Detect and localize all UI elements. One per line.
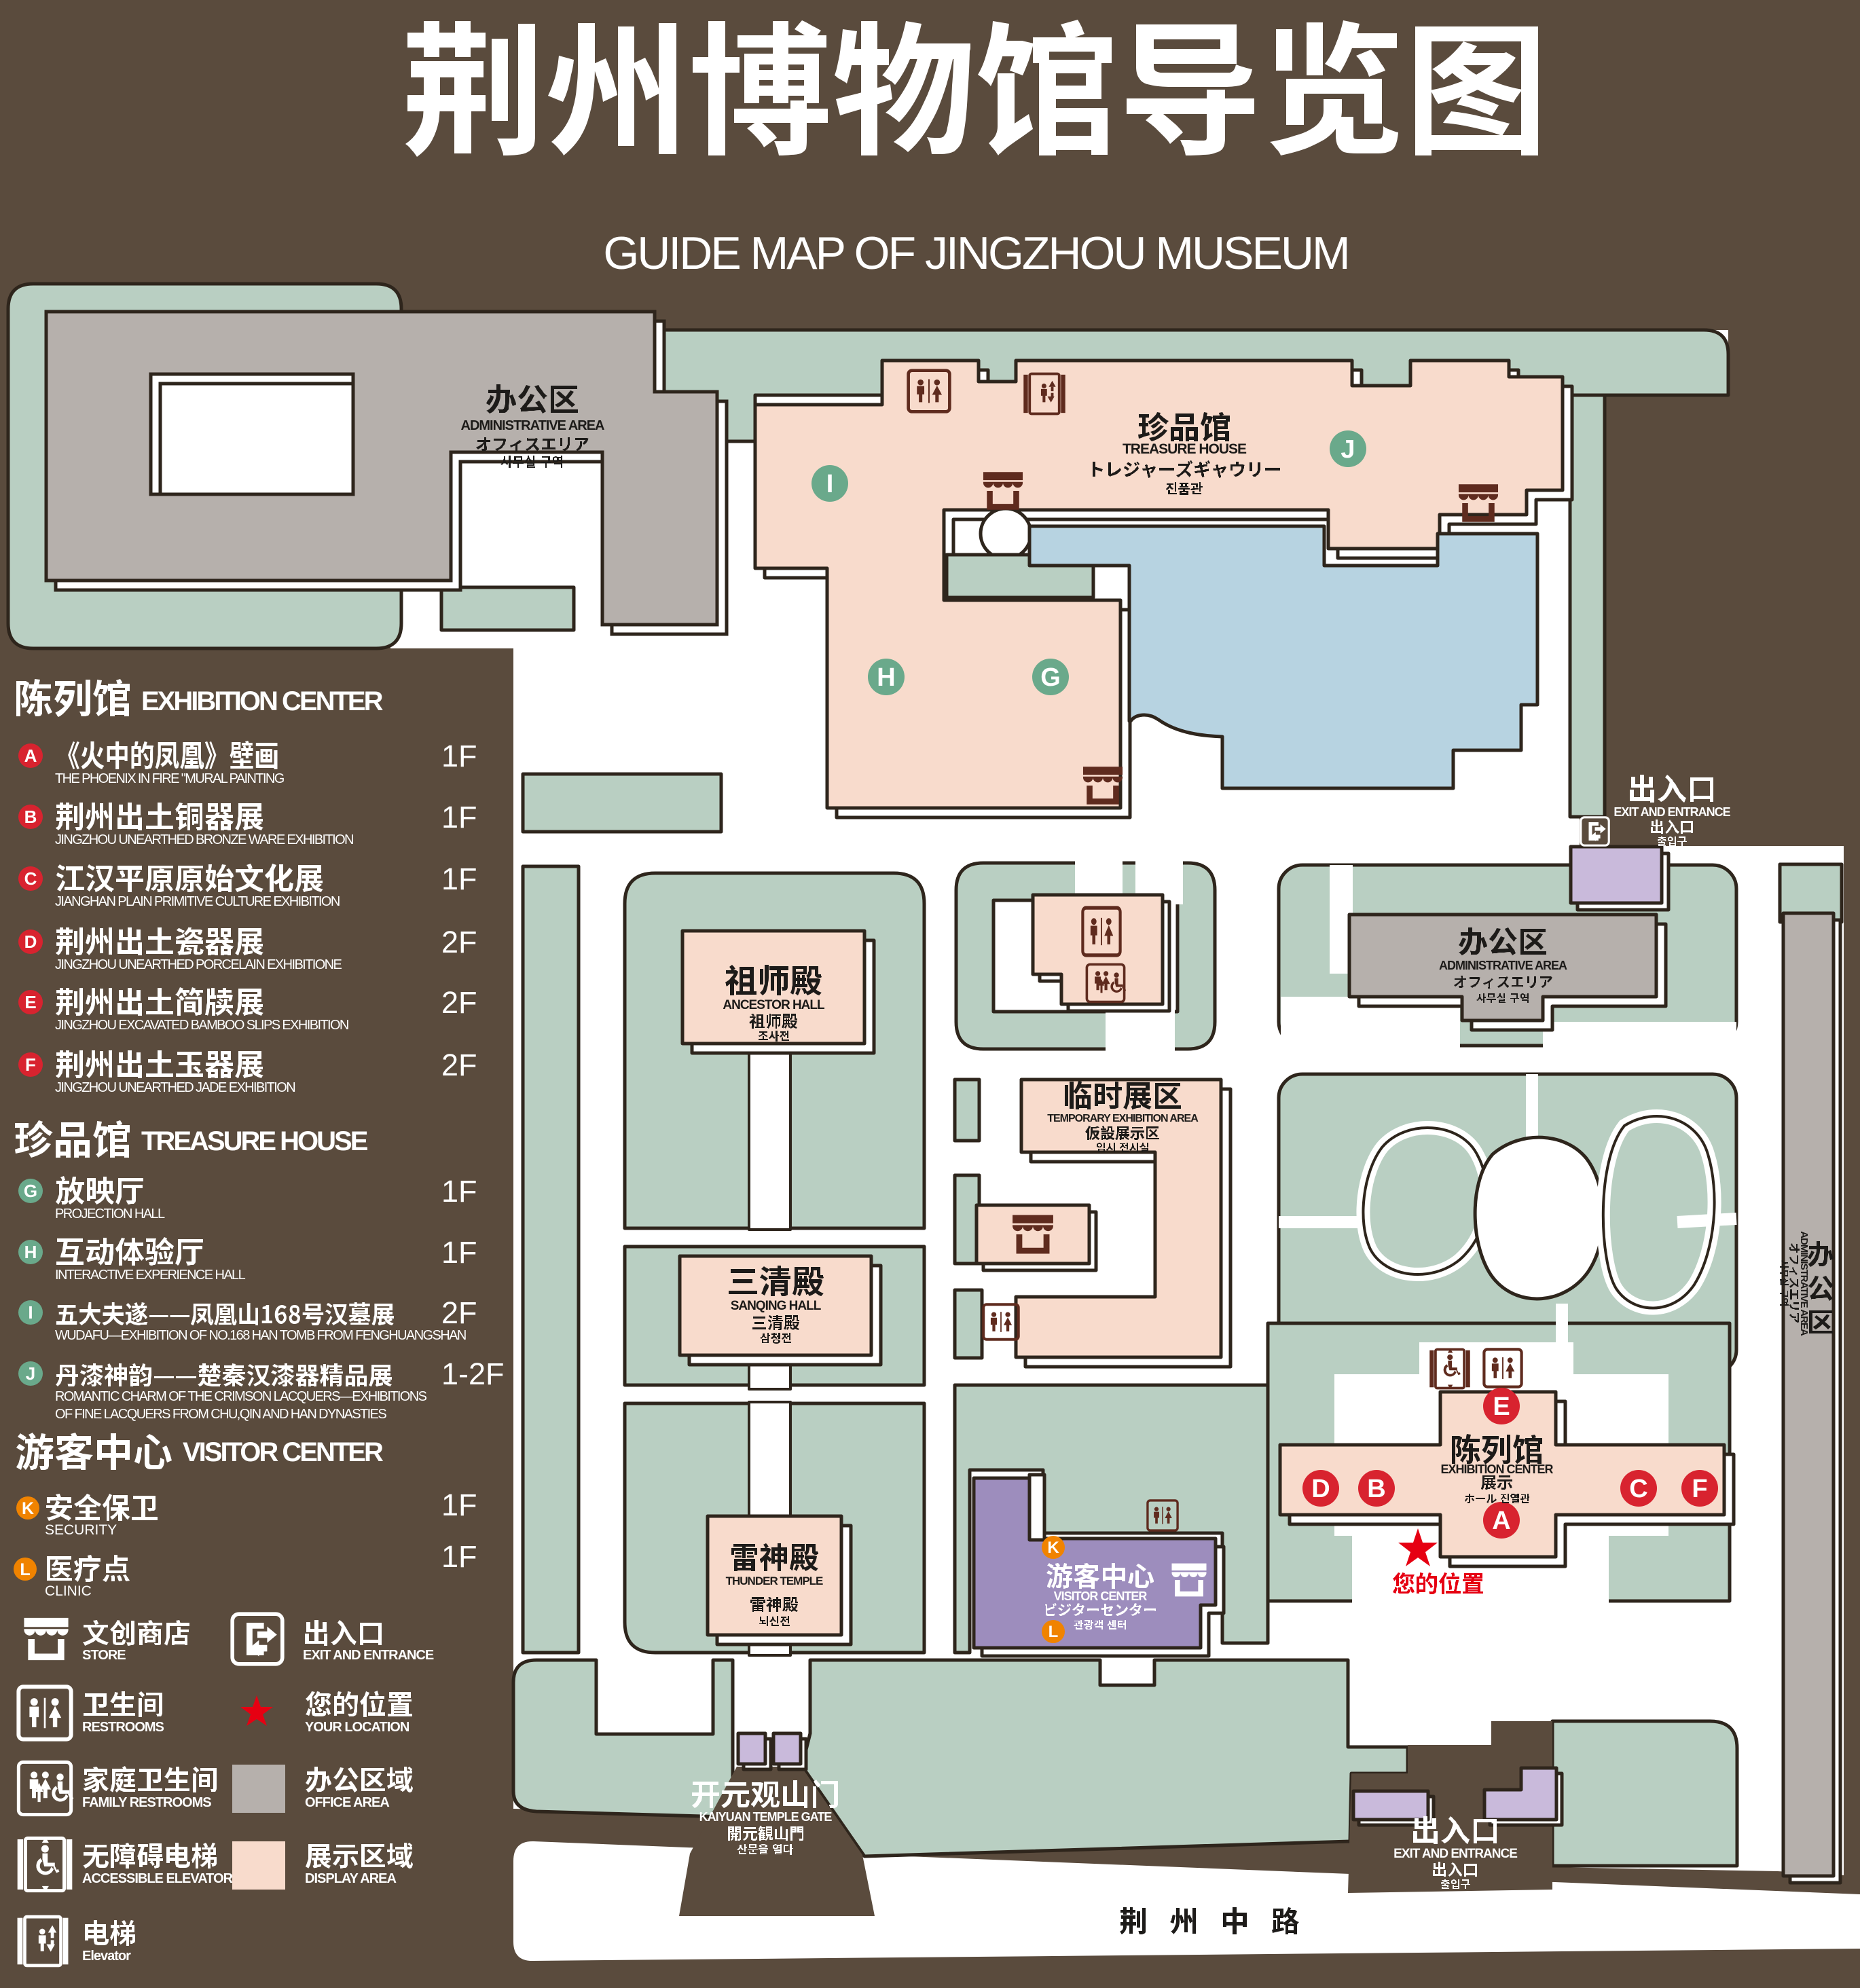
svg-text:TREASURE HOUSE: TREASURE HOUSE bbox=[141, 1126, 368, 1156]
svg-text:EXHIBITION CENTER: EXHIBITION CENTER bbox=[141, 686, 384, 716]
svg-text:B: B bbox=[1367, 1475, 1385, 1503]
svg-text:2F: 2F bbox=[441, 985, 477, 1020]
svg-text:ROMANTIC CHARM OF THE CRIMSON: ROMANTIC CHARM OF THE CRIMSON LACQUERS—E… bbox=[55, 1389, 427, 1404]
svg-text:INTERACTIVE EXPERIENCE HALL: INTERACTIVE EXPERIENCE HALL bbox=[55, 1268, 246, 1283]
svg-text:A: A bbox=[24, 745, 37, 766]
svg-text:D: D bbox=[1311, 1475, 1330, 1503]
svg-text:KAIYUAN TEMPLE GATE: KAIYUAN TEMPLE GATE bbox=[699, 1810, 833, 1824]
svg-text:1F: 1F bbox=[441, 1235, 477, 1270]
svg-text:G: G bbox=[24, 1181, 37, 1201]
svg-text:L: L bbox=[1048, 1623, 1059, 1641]
svg-text:C: C bbox=[24, 868, 37, 889]
svg-text:JINGZHOU UNEARTHED PORCELAIN E: JINGZHOU UNEARTHED PORCELAIN EXHIBITIONE bbox=[55, 957, 342, 972]
svg-text:ADMINISTRATIVE AREA: ADMINISTRATIVE AREA bbox=[461, 418, 605, 433]
svg-text:VISITOR CENTER: VISITOR CENTER bbox=[183, 1437, 384, 1467]
svg-text:E: E bbox=[24, 992, 36, 1012]
svg-text:A: A bbox=[1492, 1507, 1510, 1535]
svg-text:1F: 1F bbox=[441, 862, 477, 896]
svg-text:EXIT AND ENTRANCE: EXIT AND ENTRANCE bbox=[303, 1648, 434, 1663]
svg-text:C: C bbox=[1629, 1475, 1647, 1503]
svg-text:THUNDER TEMPLE: THUNDER TEMPLE bbox=[726, 1575, 823, 1587]
svg-text:OF FINE LACQUERS FROM CHU,QIN: OF FINE LACQUERS FROM CHU,QIN AND HAN DY… bbox=[55, 1407, 386, 1422]
svg-text:K: K bbox=[1047, 1539, 1059, 1557]
svg-text:I: I bbox=[826, 470, 834, 498]
svg-text:1F: 1F bbox=[441, 800, 477, 834]
svg-text:JINGZHOU UNEARTHED JADE EXHIBI: JINGZHOU UNEARTHED JADE EXHIBITION bbox=[55, 1080, 295, 1095]
svg-text:OFFICE AREA: OFFICE AREA bbox=[305, 1795, 389, 1810]
svg-text:STORE: STORE bbox=[82, 1648, 126, 1663]
svg-text:RESTROOMS: RESTROOMS bbox=[82, 1720, 164, 1735]
svg-text:2F: 2F bbox=[441, 925, 477, 959]
svg-text:2F: 2F bbox=[441, 1048, 477, 1082]
svg-text:L: L bbox=[20, 1560, 30, 1579]
svg-text:CLINIC: CLINIC bbox=[45, 1583, 92, 1599]
svg-text:PROJECTION HALL: PROJECTION HALL bbox=[55, 1207, 165, 1221]
svg-text:JINGZHOU UNEARTHED BRONZE WARE: JINGZHOU UNEARTHED BRONZE WARE EXHIBITIO… bbox=[55, 832, 353, 847]
svg-text:ACCESSIBLE ELEVATOR: ACCESSIBLE ELEVATOR bbox=[82, 1871, 234, 1886]
svg-text:B: B bbox=[24, 807, 37, 827]
svg-text:SECURITY: SECURITY bbox=[45, 1522, 117, 1538]
svg-text:F: F bbox=[25, 1054, 36, 1075]
svg-text:VISITOR CENTER: VISITOR CENTER bbox=[1054, 1589, 1148, 1603]
svg-text:1F: 1F bbox=[441, 739, 477, 773]
svg-text:ADMINISTRATIVE AREA: ADMINISTRATIVE AREA bbox=[1798, 1231, 1810, 1336]
svg-text:DISPLAY AREA: DISPLAY AREA bbox=[305, 1871, 397, 1886]
svg-text:G: G bbox=[1040, 663, 1061, 692]
svg-text:H: H bbox=[877, 663, 895, 692]
svg-text:ANCESTOR HALL: ANCESTOR HALL bbox=[723, 998, 825, 1012]
svg-text:EXIT AND ENTRANCE: EXIT AND ENTRANCE bbox=[1393, 1847, 1517, 1861]
svg-text:WUDAFU—EXHIBITION OF NO.168 HA: WUDAFU—EXHIBITION OF NO.168 HAN TOMB FRO… bbox=[55, 1328, 466, 1343]
svg-text:JINGZHOU EXCAVATED BAMBOO SLIP: JINGZHOU EXCAVATED BAMBOO SLIPS EXHIBITI… bbox=[55, 1018, 348, 1033]
svg-text:YOUR LOCATION: YOUR LOCATION bbox=[305, 1720, 409, 1735]
svg-text:GUIDE MAP OF JINGZHOU MUSEUM: GUIDE MAP OF JINGZHOU MUSEUM bbox=[603, 227, 1348, 279]
svg-text:1F: 1F bbox=[441, 1488, 477, 1522]
svg-text:1F: 1F bbox=[441, 1539, 477, 1574]
svg-text:H: H bbox=[24, 1242, 37, 1262]
svg-text:1F: 1F bbox=[441, 1174, 477, 1209]
svg-text:EXIT AND ENTRANCE: EXIT AND ENTRANCE bbox=[1613, 805, 1730, 819]
svg-text:ADMINISTRATIVE AREA: ADMINISTRATIVE AREA bbox=[1439, 959, 1567, 972]
svg-text:1-2F: 1-2F bbox=[441, 1357, 505, 1391]
svg-text:TEMPORARY EXHIBITION AREA: TEMPORARY EXHIBITION AREA bbox=[1047, 1113, 1199, 1124]
svg-text:D: D bbox=[24, 932, 37, 952]
svg-text:2F: 2F bbox=[441, 1295, 477, 1330]
svg-text:J: J bbox=[1341, 435, 1355, 464]
svg-text:TREASURE HOUSE: TREASURE HOUSE bbox=[1123, 441, 1247, 457]
svg-text:THE PHOENIX IN FIRE "MURAL PAI: THE PHOENIX IN FIRE "MURAL PAINTING bbox=[55, 771, 285, 786]
svg-text:E: E bbox=[1493, 1393, 1510, 1421]
svg-text:I: I bbox=[28, 1302, 33, 1323]
svg-text:SANQING HALL: SANQING HALL bbox=[731, 1299, 822, 1313]
svg-text:EXHIBITION CENTER: EXHIBITION CENTER bbox=[1440, 1462, 1553, 1476]
svg-text:K: K bbox=[22, 1499, 34, 1518]
svg-text:J: J bbox=[26, 1363, 35, 1384]
svg-text:F: F bbox=[1692, 1475, 1707, 1503]
svg-text:Elevator: Elevator bbox=[82, 1949, 131, 1964]
svg-text:FAMILY RESTROOMS: FAMILY RESTROOMS bbox=[82, 1795, 211, 1810]
svg-text:JIANGHAN PLAIN PRIMITIVE CULTU: JIANGHAN PLAIN PRIMITIVE CULTURE EXHIBIT… bbox=[55, 894, 340, 909]
